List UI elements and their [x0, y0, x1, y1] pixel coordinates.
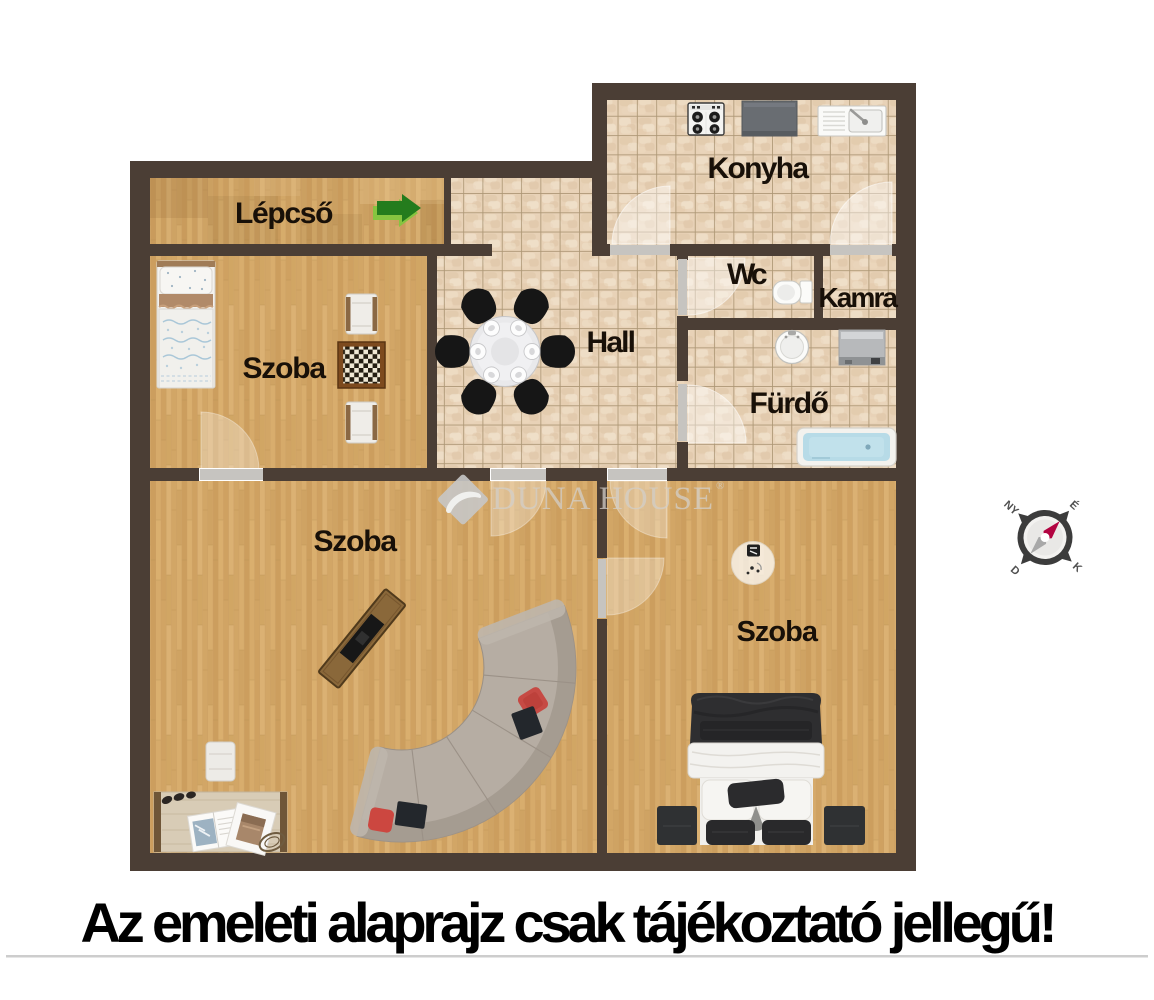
svg-text:Kamra: Kamra [819, 282, 899, 313]
svg-text:®: ® [716, 480, 724, 492]
svg-text:Szoba: Szoba [243, 352, 327, 385]
svg-text:Szoba: Szoba [737, 616, 819, 648]
svg-text:Hall: Hall [587, 326, 636, 359]
svg-text:Konyha: Konyha [708, 152, 810, 185]
svg-text:DUNA HOUSE: DUNA HOUSE [492, 481, 714, 517]
svg-text:Az emeleti alaprajz csak tájék: Az emeleti alaprajz csak tájékoztató jel… [81, 891, 1058, 954]
svg-text:Fürdő: Fürdő [750, 387, 829, 420]
svg-text:Lépcső: Lépcső [235, 197, 333, 230]
svg-text:Wc: Wc [727, 258, 767, 291]
svg-text:Szoba: Szoba [314, 525, 398, 558]
